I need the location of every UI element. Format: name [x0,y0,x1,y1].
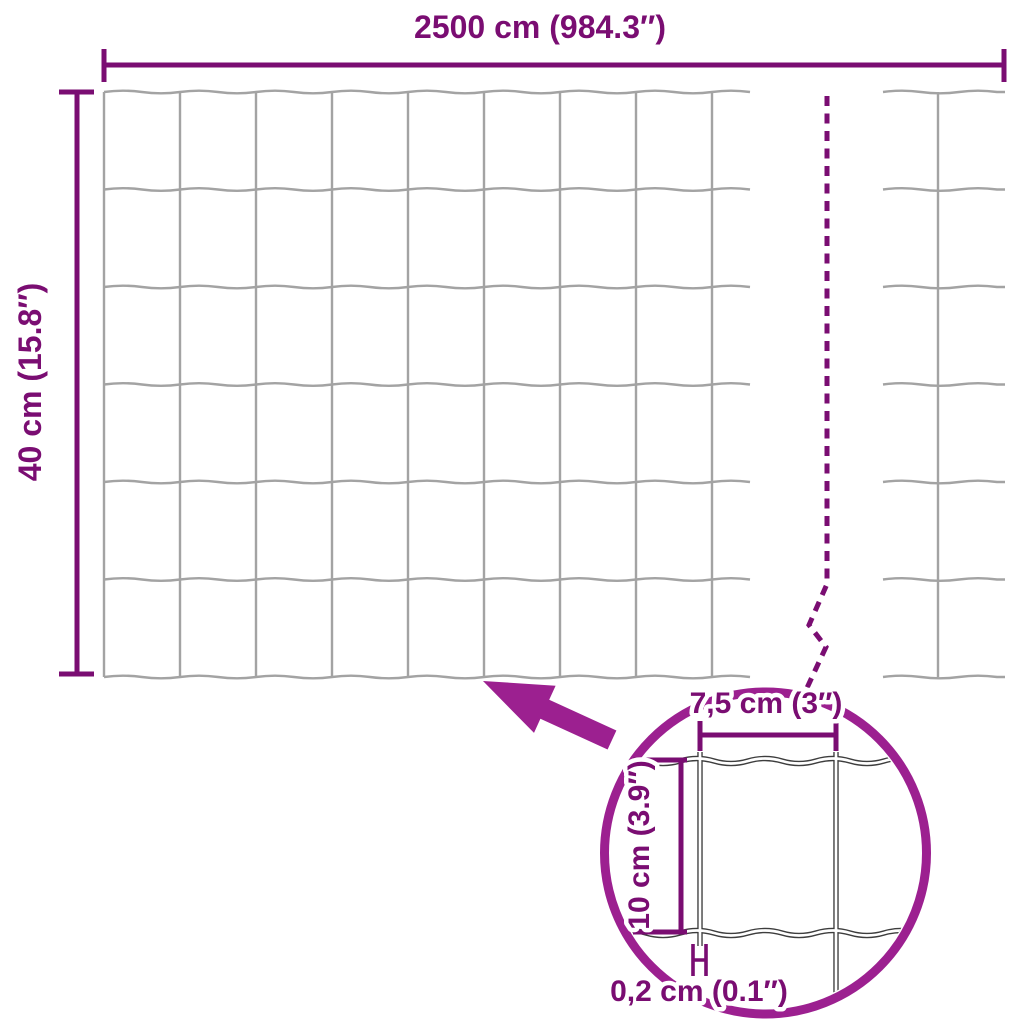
detail-width-label: 7,5 cm (3″) [690,687,843,720]
zoom-arrow-icon [483,681,616,750]
detail-mesh [612,752,918,1002]
mesh-horizontal-wire [104,578,1005,581]
mesh-horizontal-wire [104,383,1005,386]
wire-thickness-gauge [693,944,706,976]
break-line [806,96,827,690]
detail-circle-group: 7,5 cm (3″) 10 cm (3.9″) 0,2 cm (0.1″) [605,687,927,1014]
detail-thickness-label: 0,2 cm (0.1″) [610,975,788,1008]
height-dimension: 40 cm (15.8″) [12,92,94,674]
width-label: 2500 cm (984.3″) [414,9,666,45]
detail-wire-outline [612,752,918,1002]
mesh-fence [104,91,1005,679]
mesh-horizontal-wire [104,481,1005,484]
height-label: 40 cm (15.8″) [12,283,48,482]
width-dimension: 2500 cm (984.3″) [104,9,1004,82]
detail-width-line [700,721,836,751]
mesh-horizontal-wire [104,286,1005,289]
mesh-horizontal-wire [104,91,1005,94]
detail-height-label: 10 cm (3.9″) [623,760,656,929]
mesh-horizontal-wire [104,676,1005,679]
mesh-horizontal-wire [104,188,1005,191]
detail-wire-core [612,752,918,1002]
fence-mesh-dimension-diagram: 2500 cm (984.3″) 40 cm (15.8″) 7,5 cm (3… [0,0,1024,1024]
